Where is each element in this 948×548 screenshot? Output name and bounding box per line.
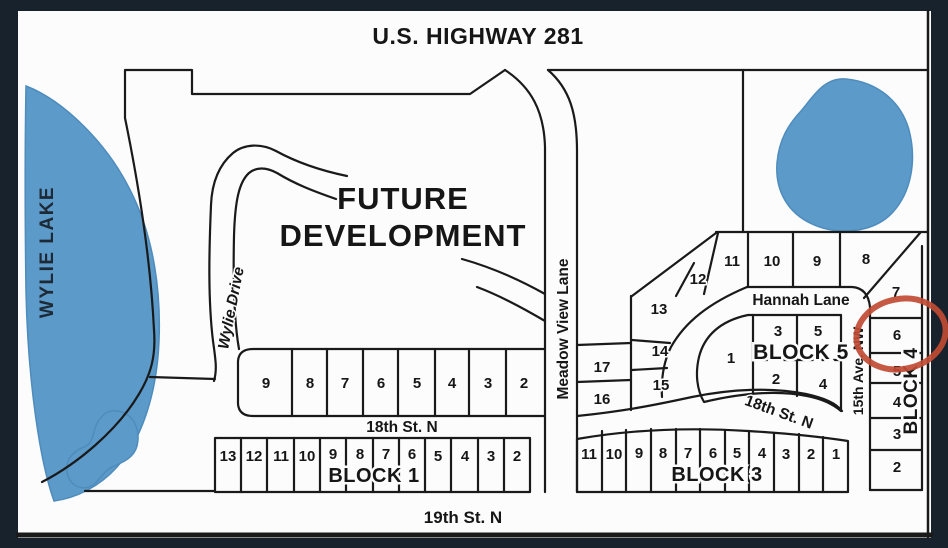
lot-number: 9	[329, 446, 337, 463]
block-label-3: BLOCK 3	[671, 464, 762, 486]
lot-number: 1	[727, 350, 735, 367]
street-label-18th-st-west: 18th St. N	[366, 419, 437, 436]
lot-number: 17	[594, 359, 611, 376]
lot-number: 16	[594, 391, 611, 408]
future-development-line2: DEVELOPMENT	[280, 218, 527, 253]
lot-number: 11	[724, 253, 740, 270]
lot-number: 6	[709, 445, 717, 462]
lot-number: 11	[273, 448, 289, 465]
lot-number: 7	[684, 445, 692, 462]
lot-number: 8	[862, 251, 870, 268]
lot-number: 12	[690, 271, 707, 288]
lot-number: 4	[893, 394, 902, 411]
lot-number: 2	[893, 459, 901, 476]
lot-number: 4	[461, 448, 470, 465]
street-label-meadow-view-lane: Meadow View Lane	[555, 258, 572, 399]
lot-number: 5	[814, 323, 822, 340]
lot-number: 3	[782, 446, 790, 463]
lot-number: 6	[408, 446, 416, 463]
future-development-line1: FUTURE	[337, 181, 469, 216]
lot-number: 3	[893, 426, 901, 443]
lot-number: 4	[758, 445, 767, 462]
highway-label: U.S. HIGHWAY 281	[372, 23, 583, 49]
plat-map-screenshot: U.S. HIGHWAY 281 WYLIE LAKE FUTURE DEVEL…	[0, 0, 948, 548]
lot-number: 5	[733, 445, 741, 462]
lake-label: WYLIE LAKE	[37, 186, 58, 318]
lot-number: 9	[262, 375, 270, 392]
lot-number-circled: 6	[893, 327, 901, 344]
street-label-19th-st: 19th St. N	[424, 508, 502, 527]
lot-number: 14	[652, 343, 669, 360]
lot-number: 10	[299, 448, 316, 465]
lot-number: 3	[774, 323, 782, 340]
lot-number: 9	[813, 253, 821, 270]
lot-number: 8	[659, 445, 667, 462]
plat-map: U.S. HIGHWAY 281 WYLIE LAKE FUTURE DEVEL…	[0, 0, 948, 548]
lot-number: 2	[772, 371, 780, 388]
lot-number: 15	[653, 377, 670, 394]
block-label-1: BLOCK 1	[328, 465, 419, 487]
block-label-5: BLOCK 5	[753, 341, 849, 364]
lot-number: 4	[448, 375, 457, 392]
lot-number: 13	[651, 301, 668, 318]
lot-number: 4	[819, 376, 828, 393]
lot-number: 3	[487, 448, 495, 465]
lot-number: 9	[635, 445, 643, 462]
street-label-hannah-lane: Hannah Lane	[752, 292, 850, 309]
lot-number: 10	[764, 253, 781, 270]
lot-number: 2	[513, 448, 521, 465]
lot-number: 1	[832, 446, 840, 463]
lot-number: 5	[413, 375, 421, 392]
block-label-4: BLOCK 4	[901, 348, 922, 435]
lot-number: 2	[520, 375, 528, 392]
lot-number: 7	[341, 375, 349, 392]
lot-number: 13	[220, 448, 237, 465]
lot-number: 6	[377, 375, 385, 392]
lot-number: 7	[382, 446, 390, 463]
lot-number: 10	[606, 446, 623, 463]
lot-number: 5	[434, 448, 442, 465]
lot-number: 8	[356, 446, 364, 463]
lot-number: 8	[306, 375, 314, 392]
lot-number: 2	[807, 446, 815, 463]
lot-number: 12	[246, 448, 263, 465]
lot-number: 3	[484, 375, 492, 392]
lot-number: 11	[581, 446, 597, 463]
